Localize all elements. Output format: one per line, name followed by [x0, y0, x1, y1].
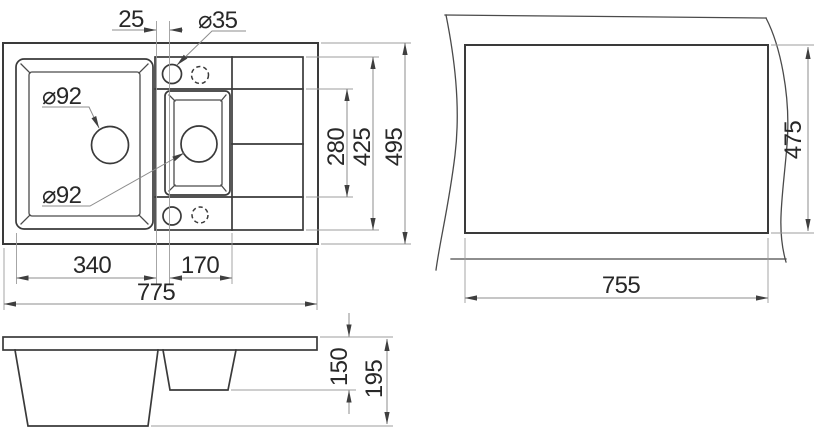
cutout-rect [465, 45, 768, 233]
dim-label-inner-height: 425 [349, 128, 376, 166]
dim-label-cutout-height: 475 [780, 121, 807, 159]
dim-label-half-bowl-width: 170 [181, 252, 219, 279]
dim-label-overall-width: 775 [137, 279, 175, 306]
side-view-dimensions: 150 195 [151, 313, 393, 426]
faucet-leader [177, 31, 246, 65]
main-bowl [16, 59, 153, 229]
dim-label-main-drain-dia: ⌀92 [42, 83, 82, 110]
top-view: 25 ⌀35 ⌀92 ⌀92 280 425 495 340 170 775 [3, 6, 411, 310]
half-bowl [165, 91, 230, 195]
faucet-hole-bottom [163, 207, 181, 225]
dim-label-faucet-hole-dia: ⌀35 [198, 7, 238, 34]
side-view: 150 195 [3, 313, 393, 426]
dim-label-half-bowl-depth: 150 [326, 348, 353, 386]
half-bowl-profile [163, 350, 236, 390]
break-line-left [436, 15, 457, 270]
faucet-hole-top-optional [192, 67, 209, 84]
dim-label-cutout-width: 755 [602, 272, 640, 299]
sink-dimension-drawing: 25 ⌀35 ⌀92 ⌀92 280 425 495 340 170 775 [0, 0, 815, 428]
faucet-hole-bottom-optional [192, 207, 208, 223]
dim-label-half-drain-dia: ⌀92 [42, 182, 82, 209]
cutout-dimensions: 475 755 [465, 45, 814, 303]
faucet-hole-top [163, 65, 182, 84]
drainboard-area [155, 57, 303, 230]
technical-drawing-canvas: 25 ⌀35 ⌀92 ⌀92 280 425 495 340 170 775 [0, 0, 815, 428]
main-drain-leader [42, 107, 99, 128]
countertop-outline [436, 15, 788, 270]
main-bowl-profile [15, 350, 158, 426]
dim-label-overall-height: 195 [361, 360, 388, 398]
dim-label-overall-depth: 495 [381, 128, 408, 166]
top-view-dimensions: 25 ⌀35 ⌀92 ⌀92 280 425 495 340 170 775 [4, 6, 411, 310]
cutout-view: 475 755 [436, 15, 814, 303]
main-drain-hole [92, 127, 129, 164]
rim-profile [3, 337, 317, 350]
half-drain-hole [181, 126, 217, 162]
dim-label-mid-height: 280 [323, 128, 350, 166]
dim-label-faucet-offset: 25 [118, 6, 144, 33]
dim-label-main-bowl-width: 340 [73, 252, 111, 279]
